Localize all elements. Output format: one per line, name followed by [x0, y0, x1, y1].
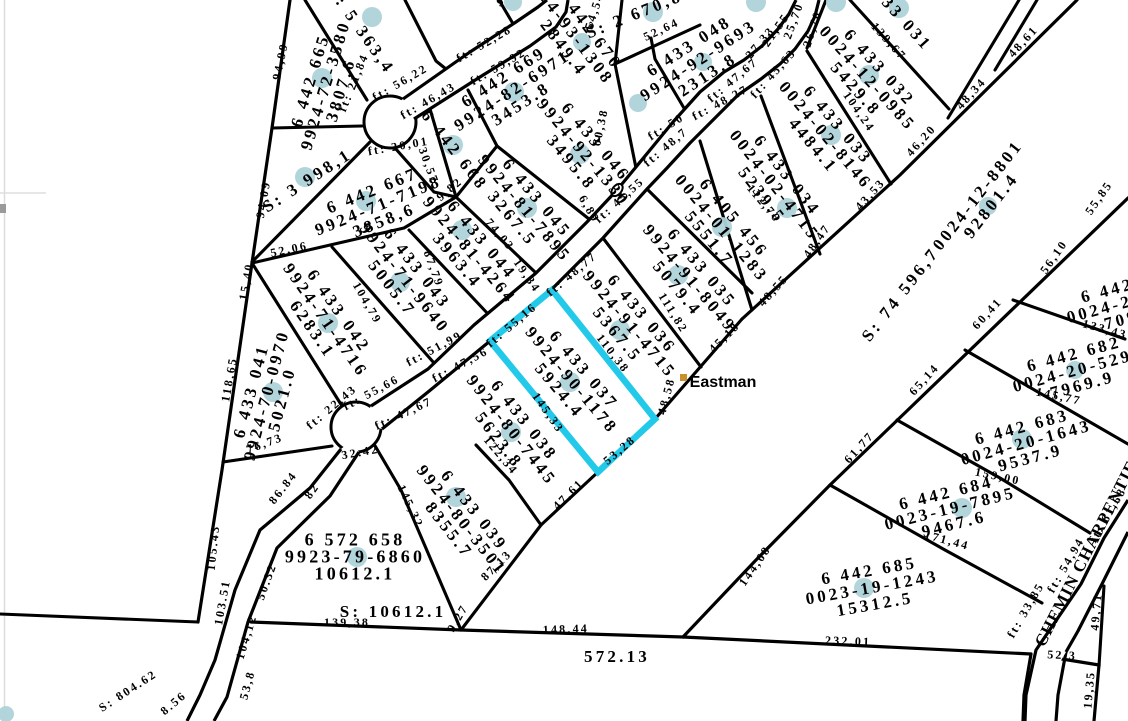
svg-text:Eastman: Eastman: [690, 374, 757, 391]
svg-text:10612.1: 10612.1: [315, 563, 396, 583]
svg-text:232,01: 232,01: [825, 633, 872, 649]
svg-text:139,38: 139,38: [324, 615, 370, 629]
svg-text:572.13: 572.13: [584, 647, 650, 666]
svg-text:52,3: 52,3: [1047, 647, 1078, 663]
svg-text:148,44: 148,44: [543, 621, 590, 637]
